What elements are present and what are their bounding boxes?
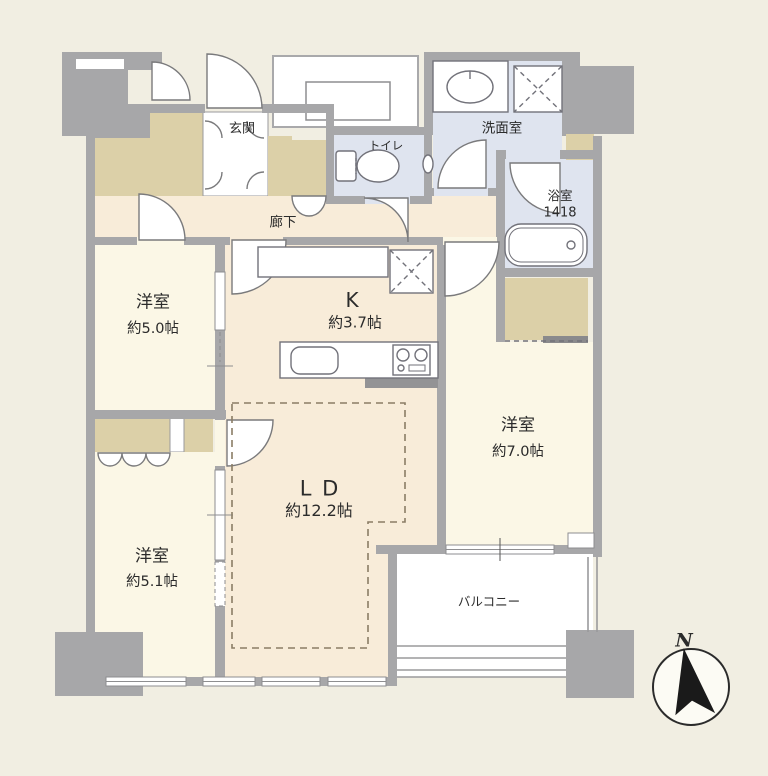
label-toilet: トイレ [369, 140, 404, 152]
label-bedroom-5-0-area: 約5.0帖 [127, 322, 179, 337]
floor-corridor-closet [292, 140, 326, 196]
fridge-space-icon [390, 250, 433, 293]
closet-divider [170, 418, 184, 452]
label-washroom: 洗面室 [482, 122, 523, 136]
label-corridor: 廊下 [270, 216, 297, 230]
compass [653, 649, 729, 725]
sink-icon [433, 61, 508, 112]
wall-notch-7-0 [568, 533, 594, 548]
bathtub-icon [505, 224, 587, 266]
kitchen-counter [280, 342, 438, 378]
entrance-door [207, 54, 262, 108]
floor-plan-drawing [0, 0, 768, 776]
floor-closet-between-bedrooms [95, 418, 213, 452]
label-bedroom-5-0: 洋室 [136, 295, 170, 312]
stove-icon [393, 345, 430, 375]
closet-5-1-folding-doors [98, 453, 170, 466]
kitchen-sink-icon [291, 347, 338, 374]
label-bedroom-7-0: 洋室 [501, 418, 535, 435]
label-living-dining: L D [300, 479, 341, 500]
label-bathroom: 浴室 [547, 190, 572, 203]
label-compass-north: N [675, 632, 692, 651]
meter-box-slot [76, 59, 124, 69]
label-kitchen: K [345, 290, 358, 310]
label-bedroom-5-1: 洋室 [135, 549, 169, 566]
partition-5-0 [215, 272, 225, 330]
partition-5-1-lower [215, 562, 225, 606]
washer-pan-icon [514, 66, 562, 112]
common-area [273, 56, 418, 127]
elevator-shaft [306, 82, 390, 120]
label-balcony: バルコニー [458, 596, 520, 609]
floor-closet-7-0 [505, 278, 588, 340]
kitchen-cabinet [258, 247, 388, 277]
floor-closet-right-of-entrance [268, 136, 292, 196]
label-living-dining-area: 約12.2帖 [285, 503, 353, 519]
label-bedroom-5-1-area: 約5.1帖 [126, 575, 178, 590]
floor-plan: 玄関 トイレ 洗面室 浴室 1418 廊下 K 約3.7帖 洋室 約5.0帖 L… [0, 0, 768, 776]
meter-box-door [152, 62, 190, 100]
label-bedroom-7-0-area: 約7.0帖 [492, 445, 544, 460]
label-entrance: 玄関 [229, 123, 255, 136]
label-kitchen-area: 約3.7帖 [328, 316, 382, 331]
label-bathroom-size: 1418 [543, 207, 576, 220]
door-knob [423, 155, 433, 173]
